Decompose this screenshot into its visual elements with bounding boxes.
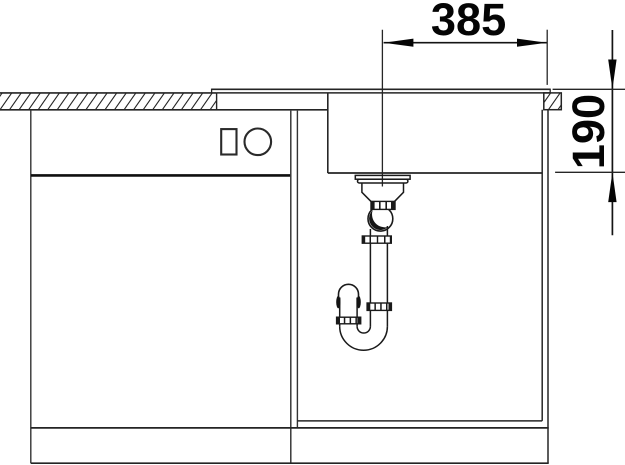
svg-text:190: 190	[563, 94, 614, 169]
svg-text:385: 385	[431, 0, 506, 45]
